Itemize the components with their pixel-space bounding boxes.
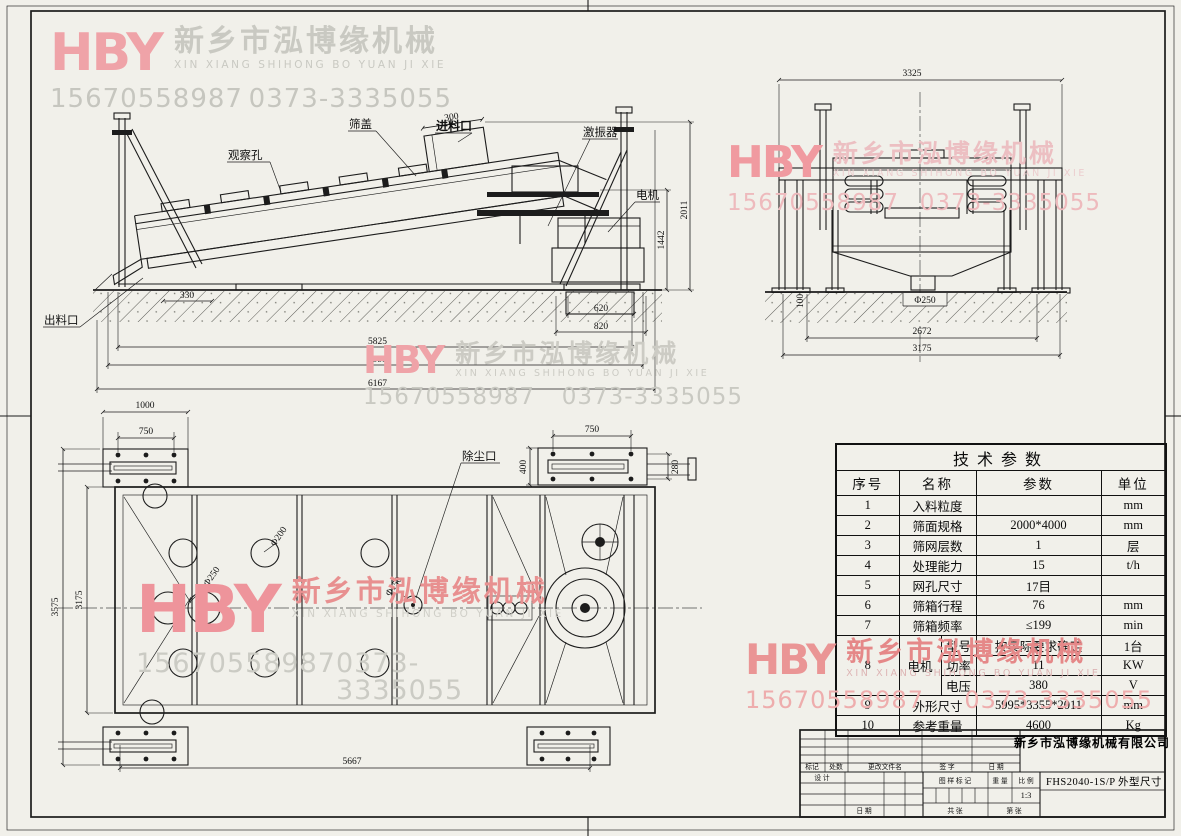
- rev-date-label: 日 期: [988, 763, 1003, 771]
- label-observation-hole: 观察孔: [228, 148, 263, 162]
- col-unit: 单位: [1101, 471, 1166, 496]
- table-row: 1入料粒度mm: [836, 496, 1166, 516]
- feed-inlet-box: [424, 127, 489, 171]
- mount-plate-bl: [58, 727, 188, 765]
- design-label: 设 计: [814, 773, 829, 782]
- dim-3325: 3325: [903, 69, 922, 79]
- sheet-no: 第 张: [1006, 806, 1021, 815]
- dim-3175-end: 3175: [913, 344, 932, 354]
- side-view-dims: 330 620 820 5825 5995 6167 2011: [97, 122, 694, 393]
- scale-label: 比 例: [1018, 776, 1033, 785]
- screen-body-end: [833, 150, 1011, 290]
- dim-3175-top: 3175: [75, 590, 85, 609]
- top-view: 1000 750 750 400 280 3575 3175: [51, 401, 702, 772]
- motor-pulley: [582, 524, 618, 560]
- ribs: [192, 495, 634, 705]
- dim-dia200: Φ200: [269, 525, 289, 548]
- spec-table: 技术参数 序号 名称 参数 单位 1入料粒度mm 2筛面规格2000*4000m…: [835, 443, 1167, 737]
- label-screen-cover: 筛盖: [349, 117, 372, 131]
- mount-plate-br: [527, 727, 610, 765]
- dim-2011: 2011: [680, 200, 690, 219]
- dim-dia150: Φ150: [384, 575, 404, 598]
- dim-6167: 6167: [368, 379, 387, 389]
- dim-620: 620: [594, 304, 609, 314]
- dim-3575: 3575: [51, 597, 61, 616]
- dim-280: 280: [671, 460, 681, 475]
- dim-1442: 1442: [657, 230, 667, 249]
- table-row: 10参考重量4600Kg: [836, 716, 1166, 737]
- col-name: 名称: [899, 471, 976, 496]
- rev-file-label: 更改文件名: [868, 762, 902, 771]
- sheet-total: 共 张: [947, 806, 962, 815]
- dim-dia250: Φ250: [202, 565, 222, 588]
- dim-820: 820: [594, 322, 609, 332]
- screen-holes: [140, 484, 625, 724]
- company-name: 新乡市泓博缘机械有限公司: [1014, 735, 1170, 750]
- dim-5825: 5825: [368, 337, 387, 347]
- label-exciter: 激振器: [583, 125, 618, 139]
- date-label: 日 期: [856, 807, 871, 815]
- dim-400: 400: [519, 460, 529, 475]
- rev-mark-label: 标记: [805, 762, 819, 771]
- col-no: 序号: [836, 471, 899, 496]
- table-row: 7筛箱频率≤199min: [836, 616, 1166, 636]
- title-block: 标记 处数 更改文件名 签 字 日 期 设 计 日 期 图 样 标 记 重 量 …: [800, 730, 1170, 817]
- dim-100: 100: [796, 294, 806, 309]
- table-row: 6筛箱行程76mm: [836, 596, 1166, 616]
- table-row: 5网孔尺寸17目: [836, 576, 1166, 596]
- dim-750-right: 750: [585, 425, 600, 435]
- exciter-assembly: [477, 166, 609, 244]
- table-row: 3筛网层数1层: [836, 536, 1166, 556]
- end-view: 3325: [765, 69, 1070, 362]
- mount-plate-tl: [58, 449, 188, 487]
- label-discharge-outlet: 出料口: [44, 313, 79, 327]
- spec-table-title: 技术参数: [836, 444, 1166, 471]
- drawing-no: FHS2040-1S/P: [1046, 777, 1116, 788]
- label-dust-port: 除尘口: [462, 449, 497, 463]
- scale-value: 1:3: [1021, 790, 1032, 800]
- col-value: 参数: [976, 471, 1101, 496]
- ground-hatch: [93, 291, 662, 322]
- drawing-title: 外型尺寸: [1118, 775, 1162, 788]
- weight-label: 重 量: [992, 777, 1007, 785]
- motor-block: [236, 218, 644, 290]
- table-row: 2筛面规格2000*4000mm: [836, 516, 1166, 536]
- dim-330: 330: [180, 291, 195, 301]
- dim-outlet-dia: Φ250: [914, 296, 935, 306]
- mark-label: 图 样 标 记: [939, 776, 971, 785]
- dim-2672: 2672: [913, 327, 932, 337]
- side-view: 300: [43, 92, 694, 393]
- dim-5995: 5995: [368, 355, 387, 365]
- dim-750-left: 750: [139, 427, 154, 437]
- braces: [124, 497, 623, 703]
- dim-5667: 5667: [343, 757, 362, 767]
- table-row: 4处理能力15t/h: [836, 556, 1166, 576]
- rev-sign-label: 签 字: [939, 762, 954, 771]
- dim-1000: 1000: [136, 401, 155, 411]
- table-row: 9外形尺寸5995*3355*2011mm: [836, 696, 1166, 716]
- table-row-motor: 8 电机 型号 按实际要求确定 1台: [836, 636, 1166, 656]
- rev-count-label: 处数: [829, 762, 843, 771]
- label-feed-inlet: 进料口: [436, 118, 472, 133]
- drawing-sheet: 300: [0, 0, 1181, 836]
